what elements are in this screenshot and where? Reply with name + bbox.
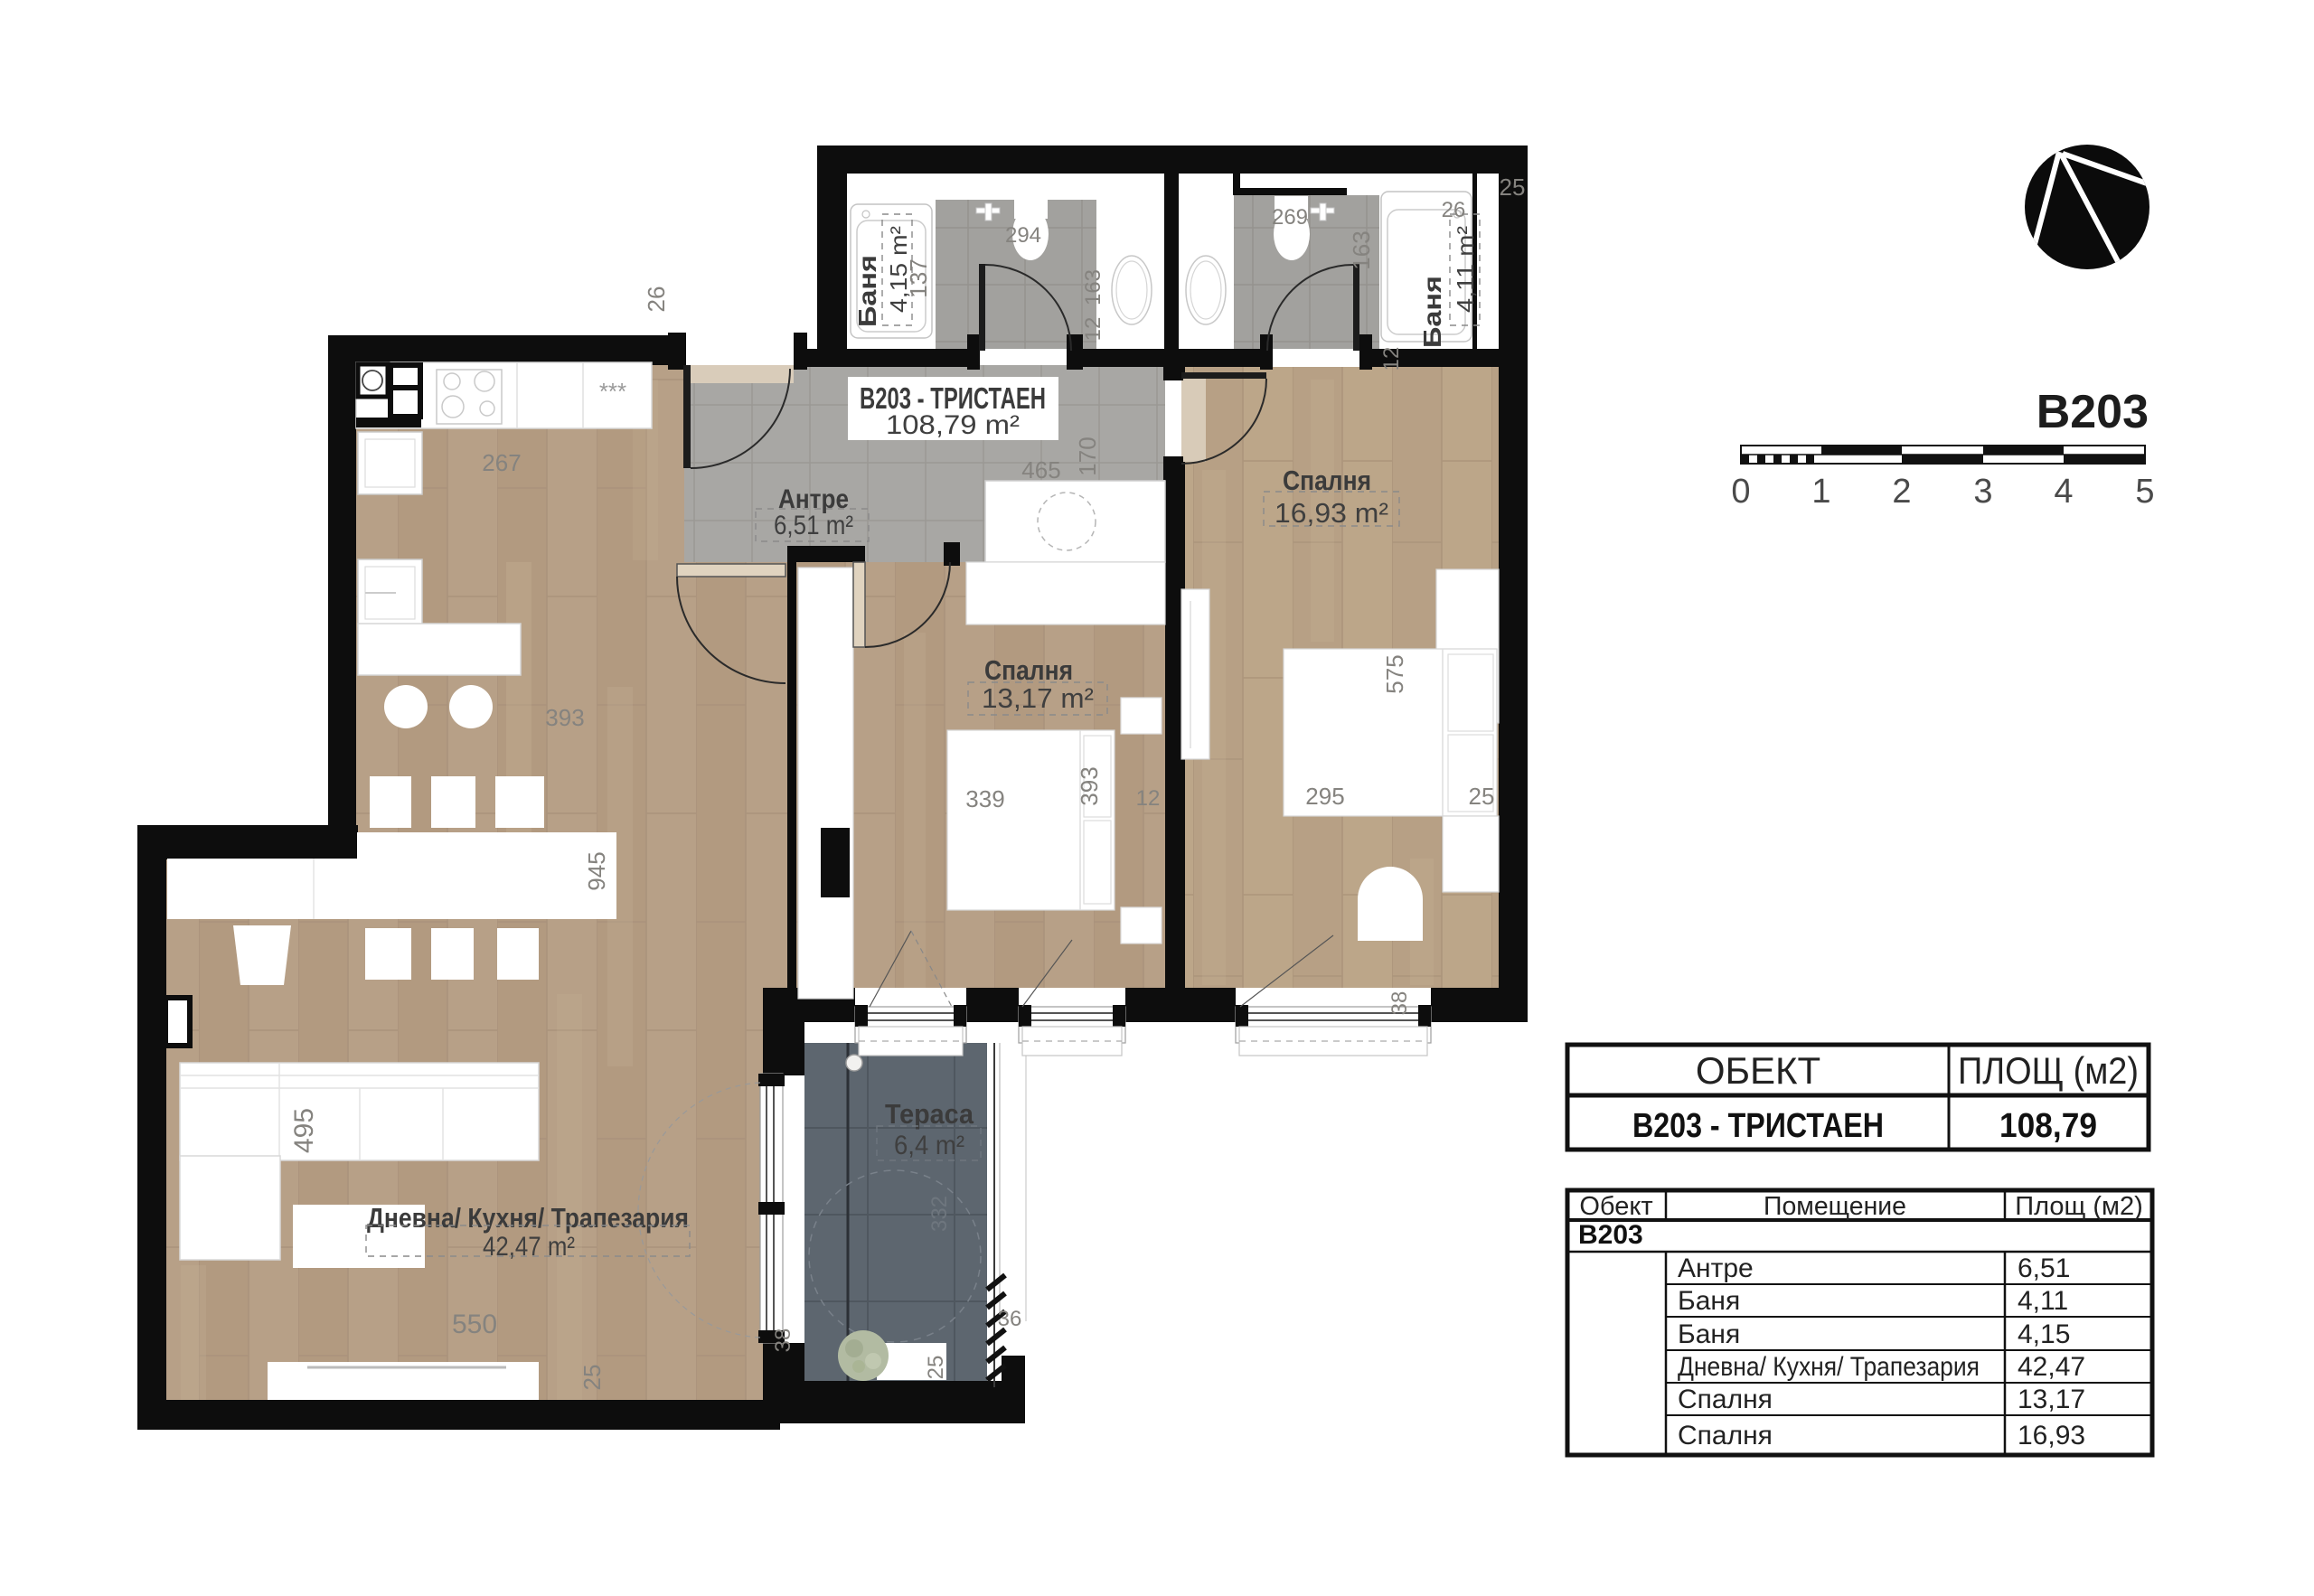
svg-text:465: 465 bbox=[1021, 456, 1060, 483]
svg-text:Площ (м2): Площ (м2) bbox=[2015, 1192, 2143, 1221]
svg-text:5: 5 bbox=[2135, 473, 2154, 511]
svg-text:Спалня: Спалня bbox=[1678, 1421, 1773, 1450]
svg-text:36: 36 bbox=[998, 1307, 1022, 1331]
svg-text:Спалня: Спалня bbox=[984, 654, 1073, 686]
svg-text:6,51: 6,51 bbox=[2018, 1253, 2070, 1283]
svg-text:38: 38 bbox=[1387, 991, 1412, 1016]
svg-text:25: 25 bbox=[578, 1365, 606, 1391]
svg-text:4,11: 4,11 bbox=[2018, 1286, 2068, 1316]
svg-text:170: 170 bbox=[1074, 437, 1101, 475]
svg-text:26: 26 bbox=[643, 286, 670, 313]
svg-text:4,15: 4,15 bbox=[2018, 1319, 2070, 1349]
svg-text:12: 12 bbox=[1136, 786, 1161, 811]
svg-text:B203: B203 bbox=[2037, 386, 2149, 438]
svg-text:4,11 m²: 4,11 m² bbox=[1452, 226, 1479, 313]
svg-text:12: 12 bbox=[1379, 347, 1404, 371]
svg-text:339: 339 bbox=[965, 785, 1004, 812]
svg-text:945: 945 bbox=[583, 851, 610, 890]
svg-text:Антре: Антре bbox=[1678, 1253, 1754, 1283]
svg-text:Баня: Баня bbox=[853, 255, 881, 327]
svg-text:Баня: Баня bbox=[1678, 1286, 1740, 1316]
svg-text:6,4 m²: 6,4 m² bbox=[894, 1131, 964, 1160]
svg-text:26: 26 bbox=[1442, 198, 1466, 222]
svg-text:42,47: 42,47 bbox=[2018, 1352, 2085, 1382]
svg-text:ПЛОЩ (м2): ПЛОЩ (м2) bbox=[1958, 1049, 2139, 1092]
svg-text:25: 25 bbox=[924, 1356, 948, 1380]
svg-text:332: 332 bbox=[927, 1196, 952, 1232]
svg-text:108,79: 108,79 bbox=[1999, 1107, 2097, 1145]
svg-text:25: 25 bbox=[1500, 174, 1526, 201]
svg-text:295: 295 bbox=[1305, 783, 1344, 810]
svg-text:42,47 m²: 42,47 m² bbox=[483, 1232, 575, 1262]
svg-text:163: 163 bbox=[1081, 269, 1105, 305]
svg-text:108,79 m²: 108,79 m² bbox=[886, 410, 1020, 440]
svg-text:ОБЕКТ: ОБЕКТ bbox=[1696, 1049, 1820, 1092]
svg-text:Помещение: Помещение bbox=[1764, 1192, 1906, 1221]
svg-text:Дневна/ Кухня/ Трапезария: Дневна/ Кухня/ Трапезария bbox=[367, 1202, 689, 1234]
svg-text:4: 4 bbox=[2054, 473, 2073, 511]
svg-text:393: 393 bbox=[545, 704, 584, 731]
svg-text:575: 575 bbox=[1381, 654, 1408, 693]
svg-text:B203 - ТРИСТАЕН: B203 - ТРИСТАЕН bbox=[1632, 1107, 1884, 1145]
svg-text:Баня: Баня bbox=[1418, 276, 1446, 348]
svg-text:Обект: Обект bbox=[1579, 1192, 1652, 1221]
svg-text:6,51 m²: 6,51 m² bbox=[774, 511, 853, 540]
svg-text:267: 267 bbox=[482, 449, 521, 476]
svg-text:294: 294 bbox=[1005, 223, 1041, 248]
svg-text:Дневна/ Кухня/ Трапезария: Дневна/ Кухня/ Трапезария bbox=[1678, 1352, 1980, 1382]
svg-text:13,17 m²: 13,17 m² bbox=[982, 682, 1094, 714]
svg-text:269: 269 bbox=[1272, 205, 1308, 230]
svg-text:Тераса: Тераса bbox=[885, 1098, 974, 1130]
svg-text:2: 2 bbox=[1892, 473, 1911, 511]
svg-text:B203: B203 bbox=[1578, 1220, 1643, 1250]
svg-text:16,93: 16,93 bbox=[2018, 1421, 2085, 1450]
svg-text:12: 12 bbox=[1081, 317, 1105, 342]
svg-text:3: 3 bbox=[1973, 473, 1992, 511]
svg-text:25: 25 bbox=[1469, 783, 1495, 810]
svg-text:***: *** bbox=[599, 378, 626, 405]
svg-text:16,93 m²: 16,93 m² bbox=[1275, 497, 1388, 529]
svg-text:38: 38 bbox=[771, 1328, 795, 1353]
svg-text:0: 0 bbox=[1731, 473, 1750, 511]
svg-text:137: 137 bbox=[905, 258, 932, 297]
svg-text:Баня: Баня bbox=[1678, 1319, 1740, 1349]
svg-text:1: 1 bbox=[1811, 473, 1830, 511]
svg-text:Спалня: Спалня bbox=[1678, 1385, 1773, 1414]
svg-text:550: 550 bbox=[452, 1310, 497, 1339]
svg-text:495: 495 bbox=[289, 1108, 319, 1153]
svg-text:393: 393 bbox=[1076, 766, 1103, 805]
svg-text:163: 163 bbox=[1348, 230, 1375, 269]
svg-text:13,17: 13,17 bbox=[2018, 1385, 2085, 1414]
